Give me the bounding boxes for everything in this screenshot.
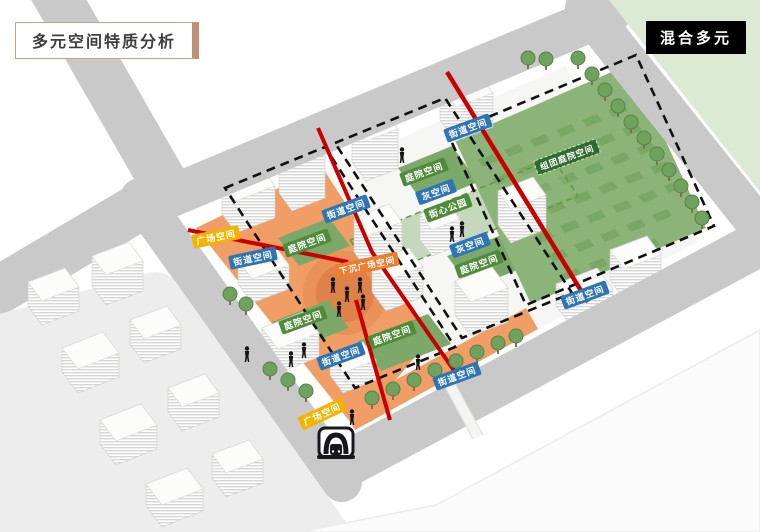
axonometric-site-diagram: 广场空间 街道空间 庭院空间 街道空间 下沉广场空间 庭院空间 灰空间 街心公园…	[0, 0, 760, 532]
metro-entrance-icon	[317, 428, 355, 459]
page-title: 多元空间特质分析	[15, 22, 199, 59]
site-plan-svg: 广场空间 街道空间 庭院空间 街道空间 下沉广场空间 庭院空间 灰空间 街心公园…	[0, 0, 760, 532]
theme-tag: 混合多元	[646, 21, 746, 54]
